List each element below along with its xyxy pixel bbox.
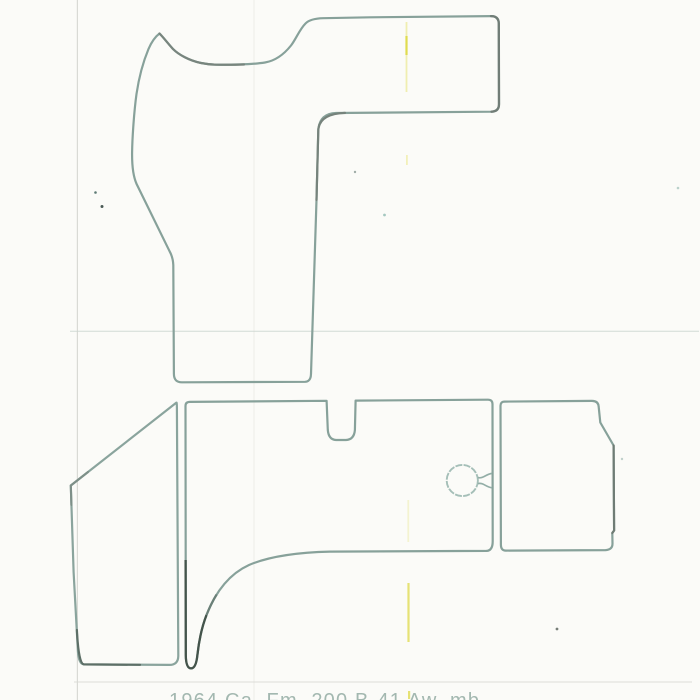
svg-text:1964 Ca. Fm. 200 B-41 Aw. mb: 1964 Ca. Fm. 200 B-41 Aw. mb xyxy=(169,690,480,700)
